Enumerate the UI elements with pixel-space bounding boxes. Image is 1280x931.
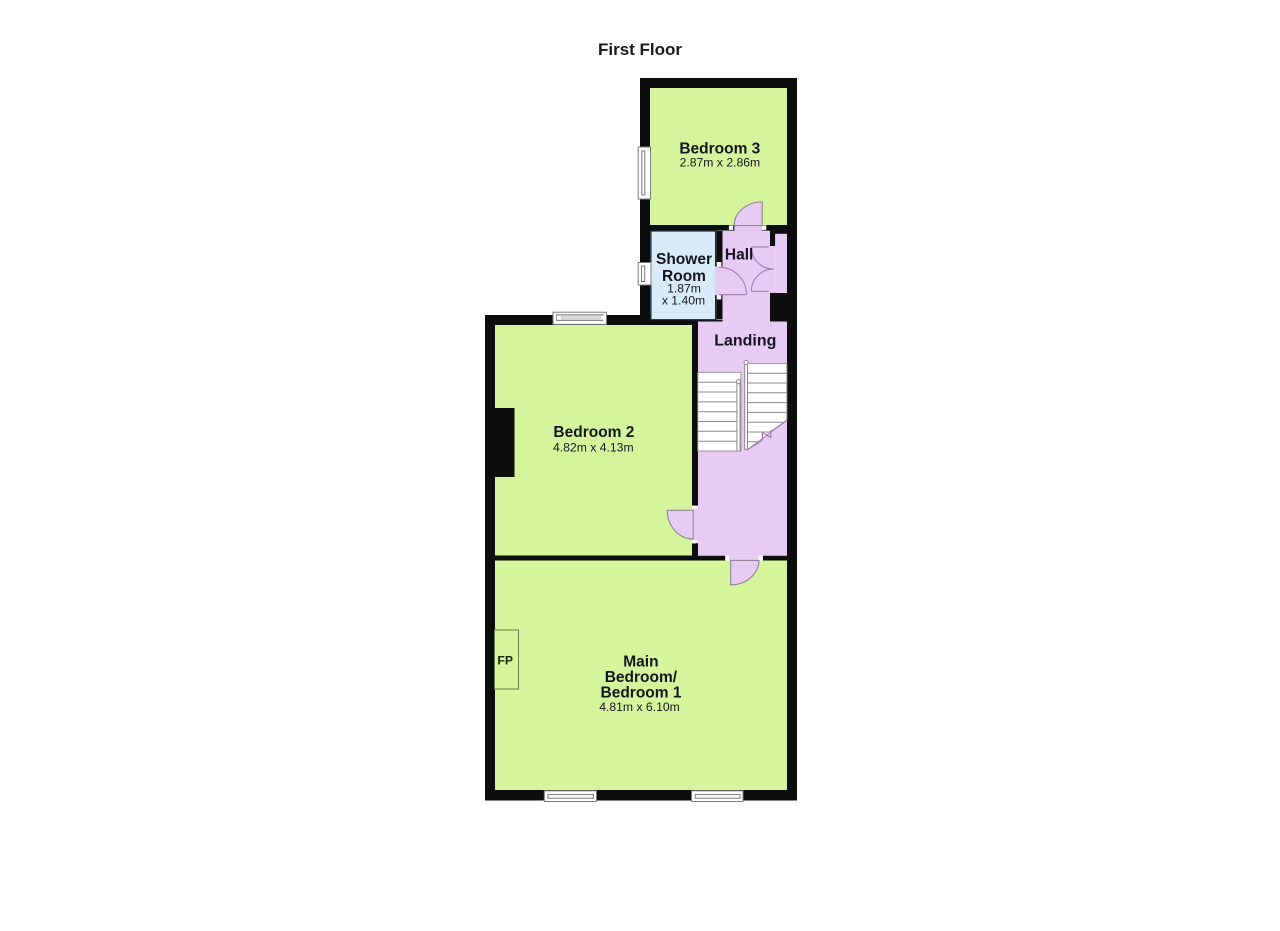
svg-text:Bedroom/: Bedroom/ [605,669,678,686]
svg-text:Shower: Shower [656,251,712,268]
svg-text:x 1.40m: x 1.40m [662,293,705,307]
svg-text:2.87m x 2.86m: 2.87m x 2.86m [680,155,761,169]
svg-text:Bedroom 1: Bedroom 1 [601,685,682,702]
svg-text:4.81m x 6.10m: 4.81m x 6.10m [599,700,680,714]
svg-text:Main: Main [623,654,658,671]
svg-text:Bedroom 2: Bedroom 2 [553,424,634,441]
svg-text:Landing: Landing [714,333,776,350]
svg-text:Hall: Hall [725,247,753,264]
svg-text:First Floor: First Floor [598,40,682,59]
svg-text:4.82m x 4.13m: 4.82m x 4.13m [553,441,634,455]
svg-text:FP: FP [497,653,513,667]
